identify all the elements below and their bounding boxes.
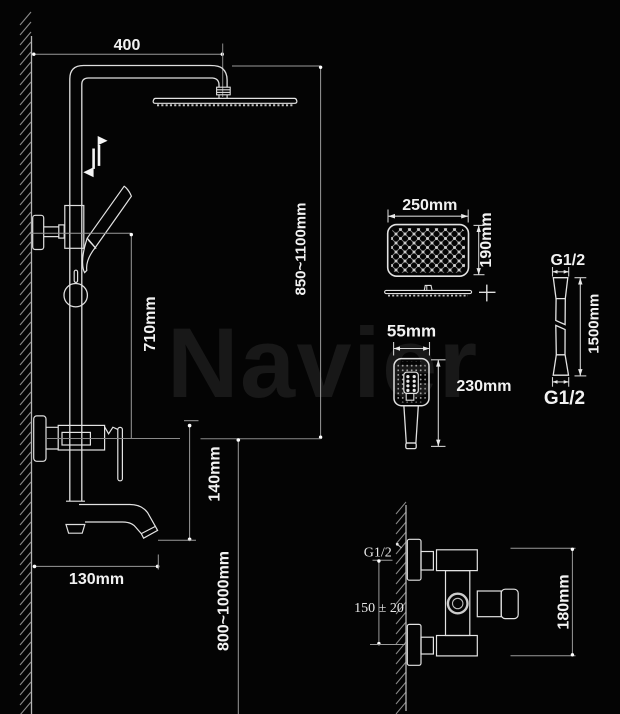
svg-text:130mm: 130mm — [69, 571, 124, 588]
svg-text:800~1000mm: 800~1000mm — [216, 551, 233, 651]
svg-text:1500mm: 1500mm — [586, 294, 603, 354]
svg-text:230mm: 230mm — [456, 378, 511, 395]
svg-text:G1/2: G1/2 — [550, 252, 585, 269]
svg-text:850~1100mm: 850~1100mm — [293, 202, 310, 295]
svg-text:55mm: 55mm — [387, 322, 436, 341]
svg-text:710mm: 710mm — [142, 296, 159, 351]
svg-text:G1/2: G1/2 — [364, 546, 392, 561]
svg-text:400: 400 — [114, 37, 141, 54]
svg-text:190mm: 190mm — [478, 212, 495, 267]
svg-text:180mm: 180mm — [556, 574, 573, 629]
svg-text:G1/2: G1/2 — [544, 388, 585, 409]
svg-text:250mm: 250mm — [402, 197, 457, 214]
svg-text:140mm: 140mm — [207, 446, 224, 501]
svg-text:150 ± 20: 150 ± 20 — [354, 601, 404, 616]
